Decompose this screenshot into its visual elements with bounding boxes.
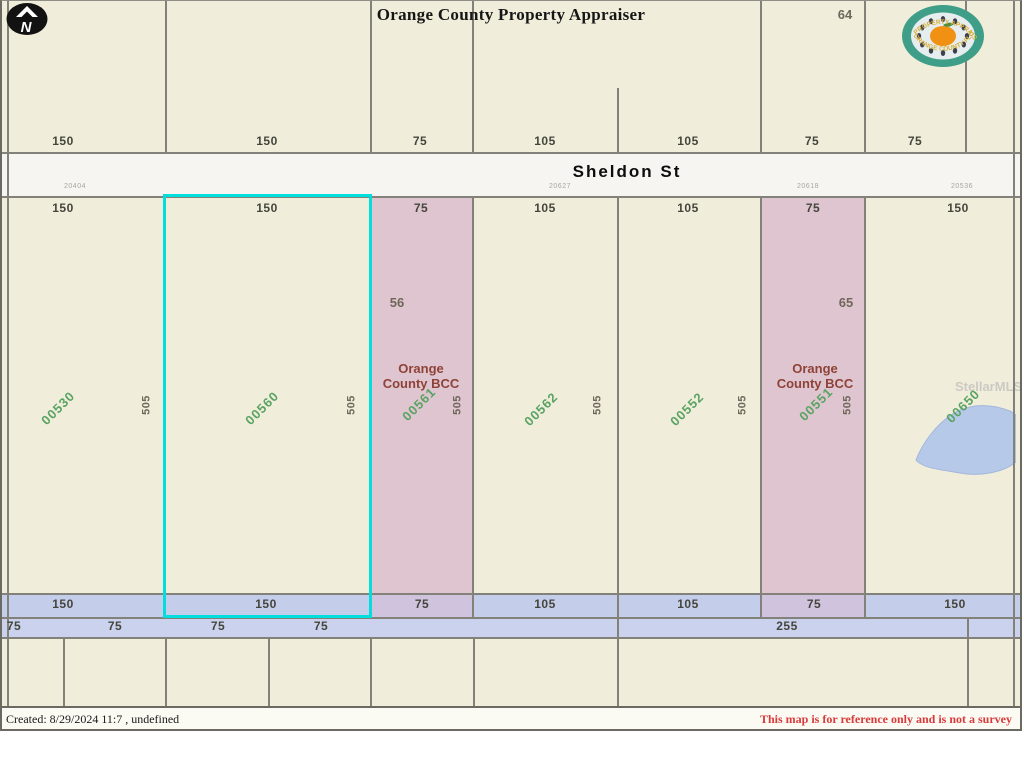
dimension-label: 150 [947,201,969,215]
depth-label: 505 [453,395,464,415]
dimension-label: 105 [677,134,699,148]
north-arrow-icon: N [5,2,49,38]
street-name-label: Sheldon St [573,162,682,182]
dimension-label: 105 [534,134,556,148]
dimension-label: 75 [806,201,820,215]
dimension-label: 150 [944,597,966,611]
dimension-label: 75 [1021,134,1022,148]
dimension-label: 75 [108,619,122,633]
boundary-line [165,637,167,706]
dimension-label: 75 [908,134,922,148]
depth-label: 505 [142,395,153,415]
depth-label: 505 [738,395,749,415]
dimension-label: 150 [52,201,74,215]
dimension-label: 75 [807,597,821,611]
dimension-label: 75 [211,619,225,633]
dimension-label: 75 [413,134,427,148]
dimension-label: 150 [256,134,278,148]
dimension-label: 150 [255,597,277,611]
depth-label: 505 [593,395,604,415]
address-label: 20404 [64,183,86,191]
dimension-label: 75 [415,597,429,611]
boundary-line [370,637,372,706]
dimension-label: 105 [677,201,699,215]
dimension-label: 150 [256,201,278,215]
dimension-label: 75 [7,619,21,633]
parcel-00650[interactable] [864,196,1013,594]
boundary-line [0,152,1022,154]
boundary-line [0,637,1022,639]
address-label: 20627 [549,183,571,191]
dimension-label: 150 [52,134,74,148]
street-band [0,152,1022,196]
dimension-label: 75 [314,619,328,633]
boundary-line [473,637,475,706]
parcel-map[interactable]: Orange County Property Appraiser N [0,0,1022,731]
block-number-label: 65 [839,296,853,310]
boundary-line [0,617,1022,619]
boundary-line [967,618,969,706]
dimension-label: 105 [534,597,556,611]
dimension-label: 75 [414,201,428,215]
owner-label: Orange County BCC [777,361,854,391]
compass-letter: N [21,19,33,36]
created-timestamp: Created: 8/29/2024 11:7 , undefined [6,712,179,726]
map-title: Orange County Property Appraiser [0,5,1022,25]
boundary-line [63,637,65,706]
page: Orange County Property Appraiser N [0,0,1024,768]
disclaimer-text: This map is for reference only and is no… [760,712,1012,726]
dimension-label: 150 [52,597,74,611]
dimension-label: 105 [677,597,699,611]
block-number-label: 56 [390,296,404,310]
county-seal-icon: PROPERTY APPRAISER ORANGE COUNTY FLORIDA [900,3,986,71]
owner-label: Orange County BCC [383,361,460,391]
address-label: 20618 [797,183,819,191]
footer-strip: Created: 8/29/2024 11:7 , undefined This… [0,706,1022,731]
boundary-line [268,637,270,706]
depth-label: 505 [347,395,358,415]
boundary-line [617,618,619,706]
dimension-label: 255 [776,619,798,633]
road-band-lower [0,617,1022,637]
depth-label: 505 [843,395,854,415]
dimension-label: 105 [534,201,556,215]
boundary-line [1013,0,1015,729]
address-label: 20536 [951,183,973,191]
boundary-line [617,88,619,152]
dimension-label: 75 [805,134,819,148]
road-band-upper [0,593,1022,617]
